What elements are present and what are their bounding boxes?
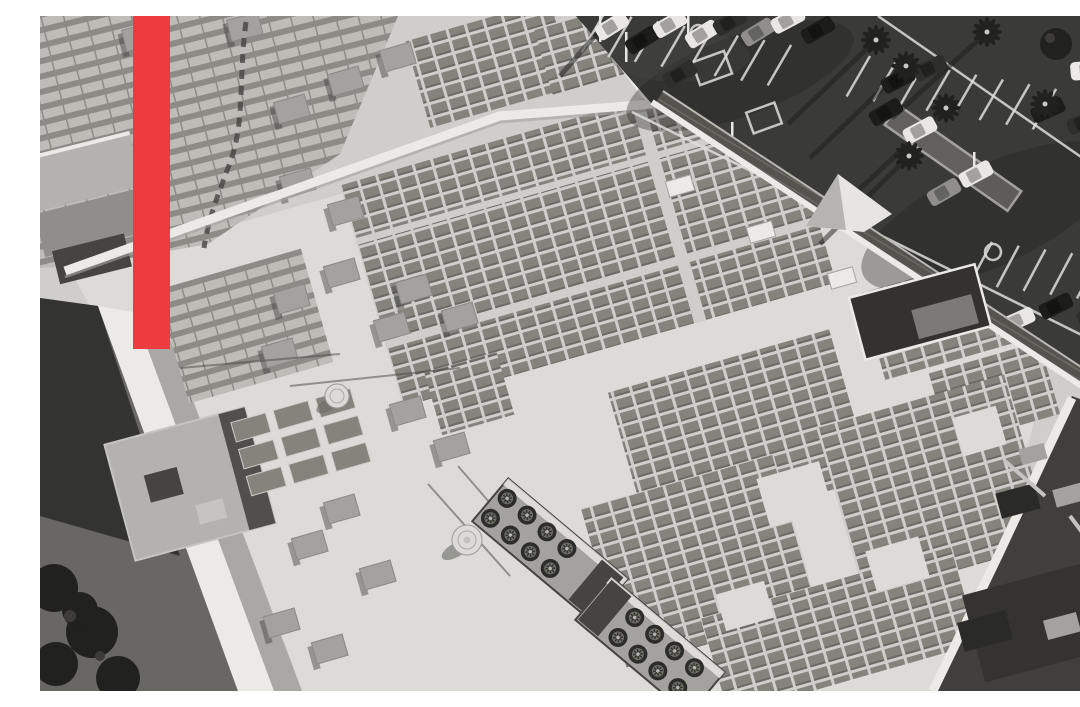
hero-image bbox=[40, 16, 1080, 691]
red-accent-bar bbox=[133, 16, 170, 349]
aerial-photo-illustration bbox=[40, 16, 1080, 691]
round-tree bbox=[1040, 28, 1072, 60]
